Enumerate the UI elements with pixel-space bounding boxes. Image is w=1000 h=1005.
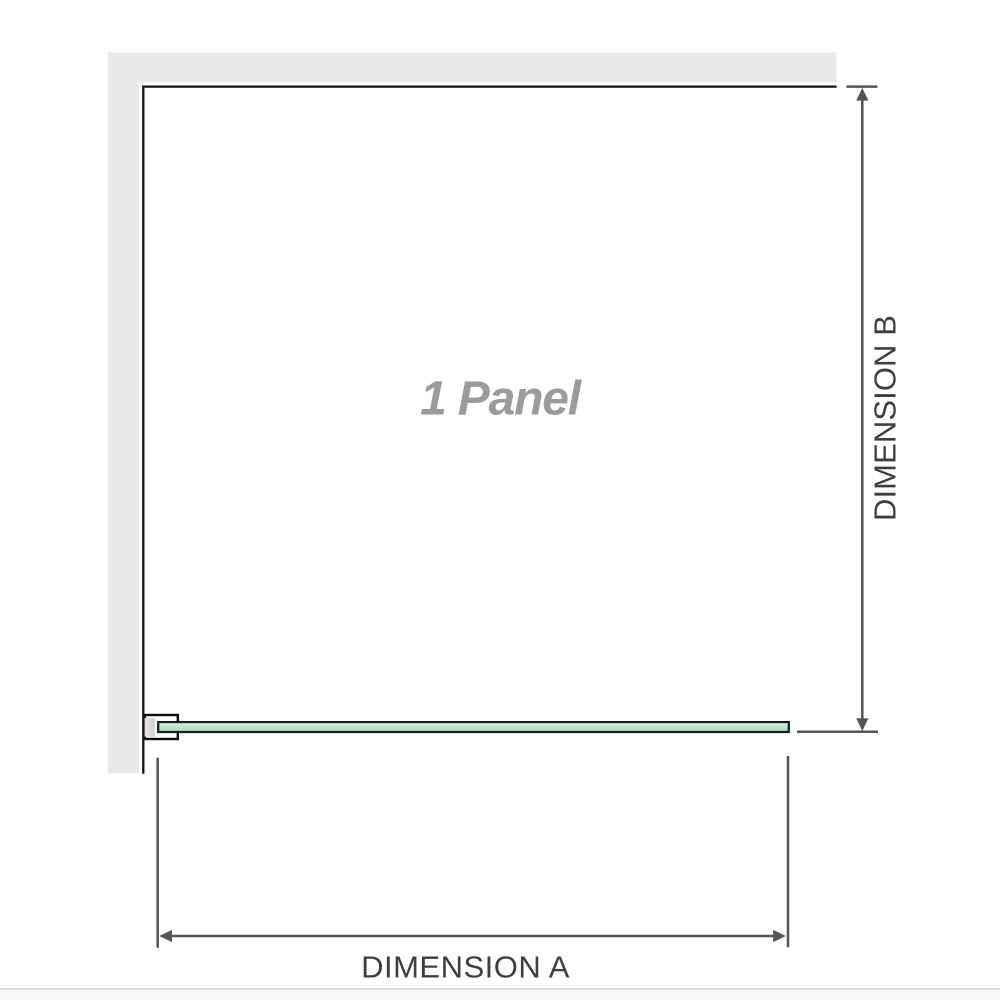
svg-text:DIMENSION A: DIMENSION A: [361, 949, 570, 984]
svg-text:1 Panel: 1 Panel: [420, 372, 583, 425]
svg-text:DIMENSION B: DIMENSION B: [867, 315, 902, 521]
